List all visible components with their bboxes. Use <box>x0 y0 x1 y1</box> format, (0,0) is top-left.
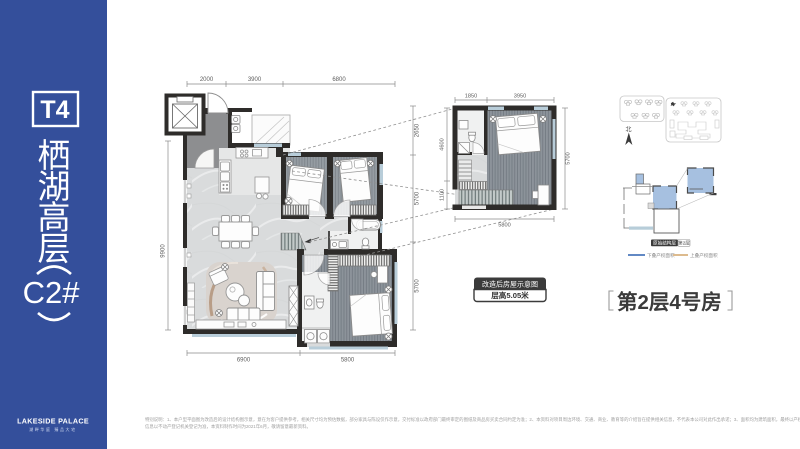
svg-text:北: 北 <box>625 126 631 134</box>
svg-text:湖畔华庭 臻品大宅: 湖畔华庭 臻品大宅 <box>29 426 77 432</box>
svg-text:1850: 1850 <box>465 94 477 100</box>
svg-text:5700: 5700 <box>415 279 421 293</box>
svg-text:2000: 2000 <box>200 77 214 83</box>
svg-text:5700: 5700 <box>415 191 421 205</box>
svg-text:下叠产权面积: 下叠产权面积 <box>647 252 675 259</box>
svg-text:3950: 3950 <box>514 94 526 100</box>
svg-text:6800: 6800 <box>332 77 346 83</box>
svg-text:LAKESIDE PALACE: LAKESIDE PALACE <box>17 417 89 426</box>
svg-text:9900: 9900 <box>161 244 167 258</box>
svg-text:第2层4号房: 第2层4号房 <box>617 290 722 314</box>
svg-text:信息以不动产登记机关登记为准，本资料制作时间为2021年6月: 信息以不动产登记机关登记为准，本资料制作时间为2021年6月，敬请留意最新资料。 <box>145 423 311 430</box>
svg-text:上叠产权面积: 上叠产权面积 <box>690 252 718 259</box>
svg-text:1100: 1100 <box>440 189 446 201</box>
svg-text:5800: 5800 <box>498 223 510 229</box>
svg-text:2650: 2650 <box>415 123 421 137</box>
svg-text:层高5.05米: 层高5.05米 <box>491 290 529 300</box>
svg-text:改造后房屋示意图: 改造后房屋示意图 <box>482 280 538 289</box>
svg-text:5700: 5700 <box>566 152 572 164</box>
svg-text:4600: 4600 <box>440 138 446 150</box>
svg-text:T4: T4 <box>40 96 69 124</box>
svg-text:C2#: C2# <box>23 275 81 310</box>
svg-text:5800: 5800 <box>341 358 355 364</box>
svg-text:特别说明：1、本户型平面图为改造后的设计结构图示意，意在为客: 特别说明：1、本户型平面图为改造后的设计结构图示意，意在为客户提供参考，相关尺寸… <box>145 416 800 423</box>
svg-text:层: 层 <box>38 230 71 267</box>
svg-text:第2层: 第2层 <box>678 240 690 247</box>
svg-text:3900: 3900 <box>248 77 262 83</box>
svg-text:6900: 6900 <box>237 358 251 364</box>
svg-text:原始结构层: 原始结构层 <box>653 240 676 247</box>
